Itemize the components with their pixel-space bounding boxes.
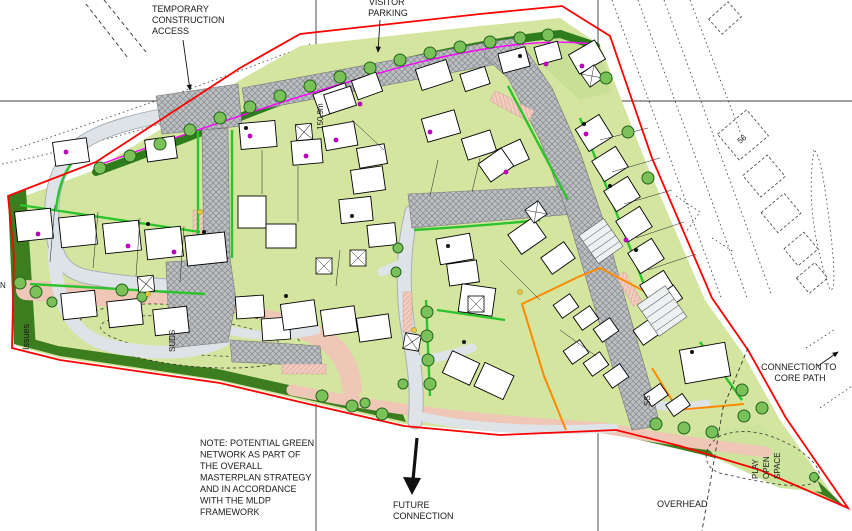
- future-connection-label: FUTURE CONNECTION: [393, 500, 454, 521]
- green-network-note: NOTE: POTENTIAL GREEN NETWORK AS PART OF…: [200, 438, 317, 517]
- temporary-access-leader: [183, 40, 190, 90]
- future-connection-arrowhead: [403, 477, 421, 495]
- site-masterplan-drawing: 56: [0, 0, 852, 531]
- masterplan-svg: 56: [0, 0, 852, 531]
- existing-verge-island: [811, 150, 834, 290]
- n-partial-label: N: [0, 281, 6, 290]
- future-connection-arrow: [413, 438, 417, 480]
- footway-strip: [282, 364, 326, 374]
- temporary-access-label: TEMPORARY CONSTRUCTION ACCESS: [152, 4, 227, 36]
- existing-road-edge: [690, 0, 744, 142]
- visitor-parking-label: VISITOR PARKING: [368, 0, 408, 18]
- suds-label: SUDS: [168, 330, 177, 352]
- level-marker-label: 150.9m: [316, 103, 325, 130]
- issues-label: Issues: [21, 323, 31, 350]
- existing-house-number-label: 56: [736, 133, 749, 146]
- existing-track-edge: [86, 4, 128, 58]
- entrance-court: [156, 84, 242, 134]
- overhead-label: OVERHEAD: [657, 499, 708, 509]
- footway-strip: [403, 292, 412, 332]
- connection-core-path-label: CONNECTION TO CORE PATH: [761, 362, 839, 383]
- existing-kerb-marks: [676, 196, 734, 252]
- substation-label: SS: [643, 395, 652, 406]
- existing-buildings: [709, 2, 828, 294]
- existing-track-edge: [104, 0, 146, 52]
